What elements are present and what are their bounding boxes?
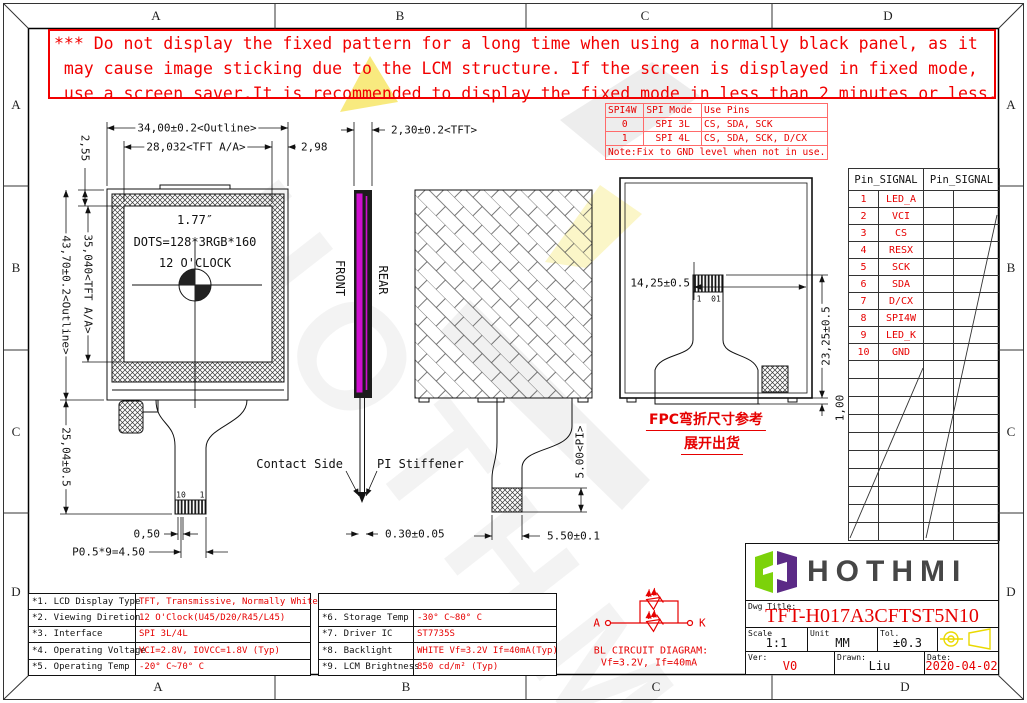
dim-active-area-height: 35,040<TFT A/A> [82,232,95,335]
zone-right-d: D [1006,584,1015,600]
pin-row: 10GND [849,344,1000,361]
version-row: Ver: V0 Drawn: Liu Date: 2020-04-02 [746,652,998,674]
zone-bottom-d: D [900,679,909,695]
pin-empty-row [849,451,1000,469]
dim-right-gap: 2,98 [299,141,330,154]
panel-clock-label: 12 O'CLOCK [157,256,233,270]
dim-tft-thickness: 2,30±0.2<TFT> [389,124,479,137]
spec-table-left: *1. LCD Display TypeTFT, Transmissive, N… [28,593,311,676]
pin-empty-row [849,379,1000,397]
folded-view-dimensions [694,262,828,416]
dim-fpc-thickness: 0.30±0.05 [383,528,447,541]
zone-left-b: B [12,260,21,276]
pin-row: 2VCI [849,208,1000,225]
dim-connector-width: 5.50±0.1 [545,530,602,543]
pi-stiffener-label: PI Stiffener [375,457,466,471]
fixed-pattern-warning: *** Do not display the fixed pattern for… [48,29,996,99]
pin-row: 6SDA [849,276,1000,293]
spec-row: *1. LCD Display TypeTFT, Transmissive, N… [29,594,311,610]
spi-header-row: SPI4WSPI ModeUse Pins [606,104,828,118]
date-cell: Date: 2020-04-02 [925,652,998,674]
pin-empty-row [849,523,1000,541]
tolerance-value: ±0.3 [878,636,937,650]
projection-symbol-cell [938,628,998,651]
zone-top-a: A [151,8,160,24]
zone-right-a: A [1006,97,1015,113]
scale-cell: Scale 1:1 [746,628,808,651]
panel-dots-label: DOTS=128*3RGB*160 [132,235,259,249]
spi-row-3l: 0SPI 3LCS, SDA, SCK [606,118,828,132]
scale-value: 1:1 [746,636,807,650]
pin-empty-row [849,397,1000,415]
unit-value: MM [808,636,877,650]
spec-row: *8. BacklightWHITE Vf=3.2V If=40mA(Typ) [319,643,557,659]
folded-pin1-label: 1 [697,295,702,304]
fpc-bend-note-line1: FPC弯折尺寸参考 [646,409,766,431]
dwg-title-row: Dwg Title: TFT-H017A3CFTST5N10 [746,601,998,628]
bl-circuit-spec: Vf=3.2V, If=40mA [599,658,699,669]
zone-right-b: B [1007,260,1016,276]
cathode-label: K [697,617,708,630]
pin-row: 4RESX [849,242,1000,259]
pin-table-header: Pin_SIGNALPin_SIGNAL [849,169,1000,191]
contact-side-label: Contact Side [254,457,345,471]
fpc-bend-note-line2: 展开出货 [681,433,743,455]
zone-top-b: B [396,8,405,24]
zone-top-d: D [883,8,892,24]
pin-empty-row [849,505,1000,523]
spec-empty-row [319,594,557,610]
rear-side-label: REAR [376,264,390,297]
pin-empty-row [849,487,1000,505]
spec-table-right: *6. Storage Temp-30° C~80° C *7. Driver … [318,593,557,676]
warning-line-2: may cause image sticking due to the LCM … [54,58,994,81]
third-angle-projection-icon [938,628,996,650]
zone-bottom-a: A [153,679,162,695]
anode-label: A [591,617,602,630]
spec-row: *4. Operating VoltageVCI=2.8V, IOVCC=1.8… [29,643,311,659]
zone-bottom-c: C [652,679,661,695]
pin-empty-row [849,469,1000,487]
dim-folded-width: 14,25±0.5 [628,277,692,290]
pin-row: 1LED_A [849,191,1000,208]
dim-outline-height: 43,70±0.2<Outline> [60,233,73,356]
pin-empty-row [849,361,1000,379]
zone-left-c: C [12,424,21,440]
spec-row: *3. InterfaceSPI 3L/4L [29,626,311,642]
zone-top-c: C [641,8,650,24]
date-value: 2020-04-02 [925,659,998,673]
folded-pin10-label: 01 [711,295,721,304]
spec-row: *5. Operating Temp-20° C~70° C [29,659,311,675]
pin-row: 9LED_K [849,327,1000,344]
drawn-value: Liu [835,659,924,673]
spi-mode-table: SPI4WSPI ModeUse Pins 0SPI 3LCS, SDA, SC… [605,103,828,160]
zone-left-a: A [11,97,20,113]
pin-empty-row [849,433,1000,451]
dim-top-gap: 2,55 [79,133,92,164]
title-block: HOTHMI Dwg Title: TFT-H017A3CFTST5N10 Sc… [745,543,999,675]
dim-fold-offset: 1,00 [834,393,847,424]
dim-fpc-length: 25,04±0.5 [60,425,73,489]
version-cell: Ver: V0 [746,652,835,674]
pin-row: 7D/CX [849,293,1000,310]
pin-row: 3CS [849,225,1000,242]
dim-pi-height: 5.00<PI> [574,424,587,481]
version-value: V0 [746,659,834,673]
bl-circuit-diagram [606,586,693,631]
unit-cell: Unit MM [808,628,878,651]
dim-outline-width: 34,00±0.2<Outline> [135,122,258,135]
spec-row: *7. Driver ICST7735S [319,626,557,642]
spec-row: *6. Storage Temp-30° C~80° C [319,610,557,626]
pin-row: 5SCK [849,259,1000,276]
bl-circuit-title: BL CIRCUIT DIAGRAM: [592,646,710,657]
hothmi-logo-icon [751,549,801,595]
spec-row: *2. Viewing Diretion12 O'Clock(U45/D20/R… [29,610,311,626]
dim-folded-height: 23,25±0.5 [820,304,833,368]
spi-row-4l: 1SPI 4LCS, SDA, SCK, D/CX [606,132,828,146]
scale-row: Scale 1:1 Unit MM Tol. ±0.3 [746,628,998,652]
pin-signal-table: Pin_SIGNALPin_SIGNAL 1LED_A 2VCI 3CS 4RE… [848,168,1000,541]
pin10-label: 10 [176,491,186,500]
pin-empty-row [849,415,1000,433]
dim-active-area-width: 28,032<TFT A/A> [144,141,247,154]
dwg-title-value: TFT-H017A3CFTST5N10 [746,605,998,628]
warning-line-1: *** Do not display the fixed pattern for… [54,33,994,56]
zone-bottom-b: B [402,679,411,695]
pin1-label: 1 [200,491,205,500]
panel-size-label: 1.77″ [175,213,215,227]
front-side-label: FRONT [333,258,347,298]
side-view-drawing [354,190,372,503]
spec-row: *9. LCM Brightness850 cd/m² (Typ) [319,659,557,675]
side-view-dimensions [341,122,385,534]
tolerance-cell: Tol. ±0.3 [878,628,938,651]
spi-note-row: Note:Fix to GND level when not in use. [606,146,828,160]
zone-right-c: C [1007,424,1016,440]
folded-view-drawing [620,178,812,404]
warning-line-3: use a screen saver.It is recommended to … [54,83,994,106]
dim-pin-width: 0,50 [132,528,163,541]
logo-row: HOTHMI [746,544,998,601]
pin-row: 8SPI4W [849,310,1000,327]
hothmi-logo-text: HOTHMI [807,555,967,589]
dim-pin-pitch: P0.5*9=4.50 [70,546,147,559]
drawing-sheet: HOTHMI [0,0,1027,703]
led-symbol-bottom [643,608,665,631]
drawn-cell: Drawn: Liu [835,652,925,674]
zone-left-d: D [11,584,20,600]
led-symbol-top [643,586,665,609]
